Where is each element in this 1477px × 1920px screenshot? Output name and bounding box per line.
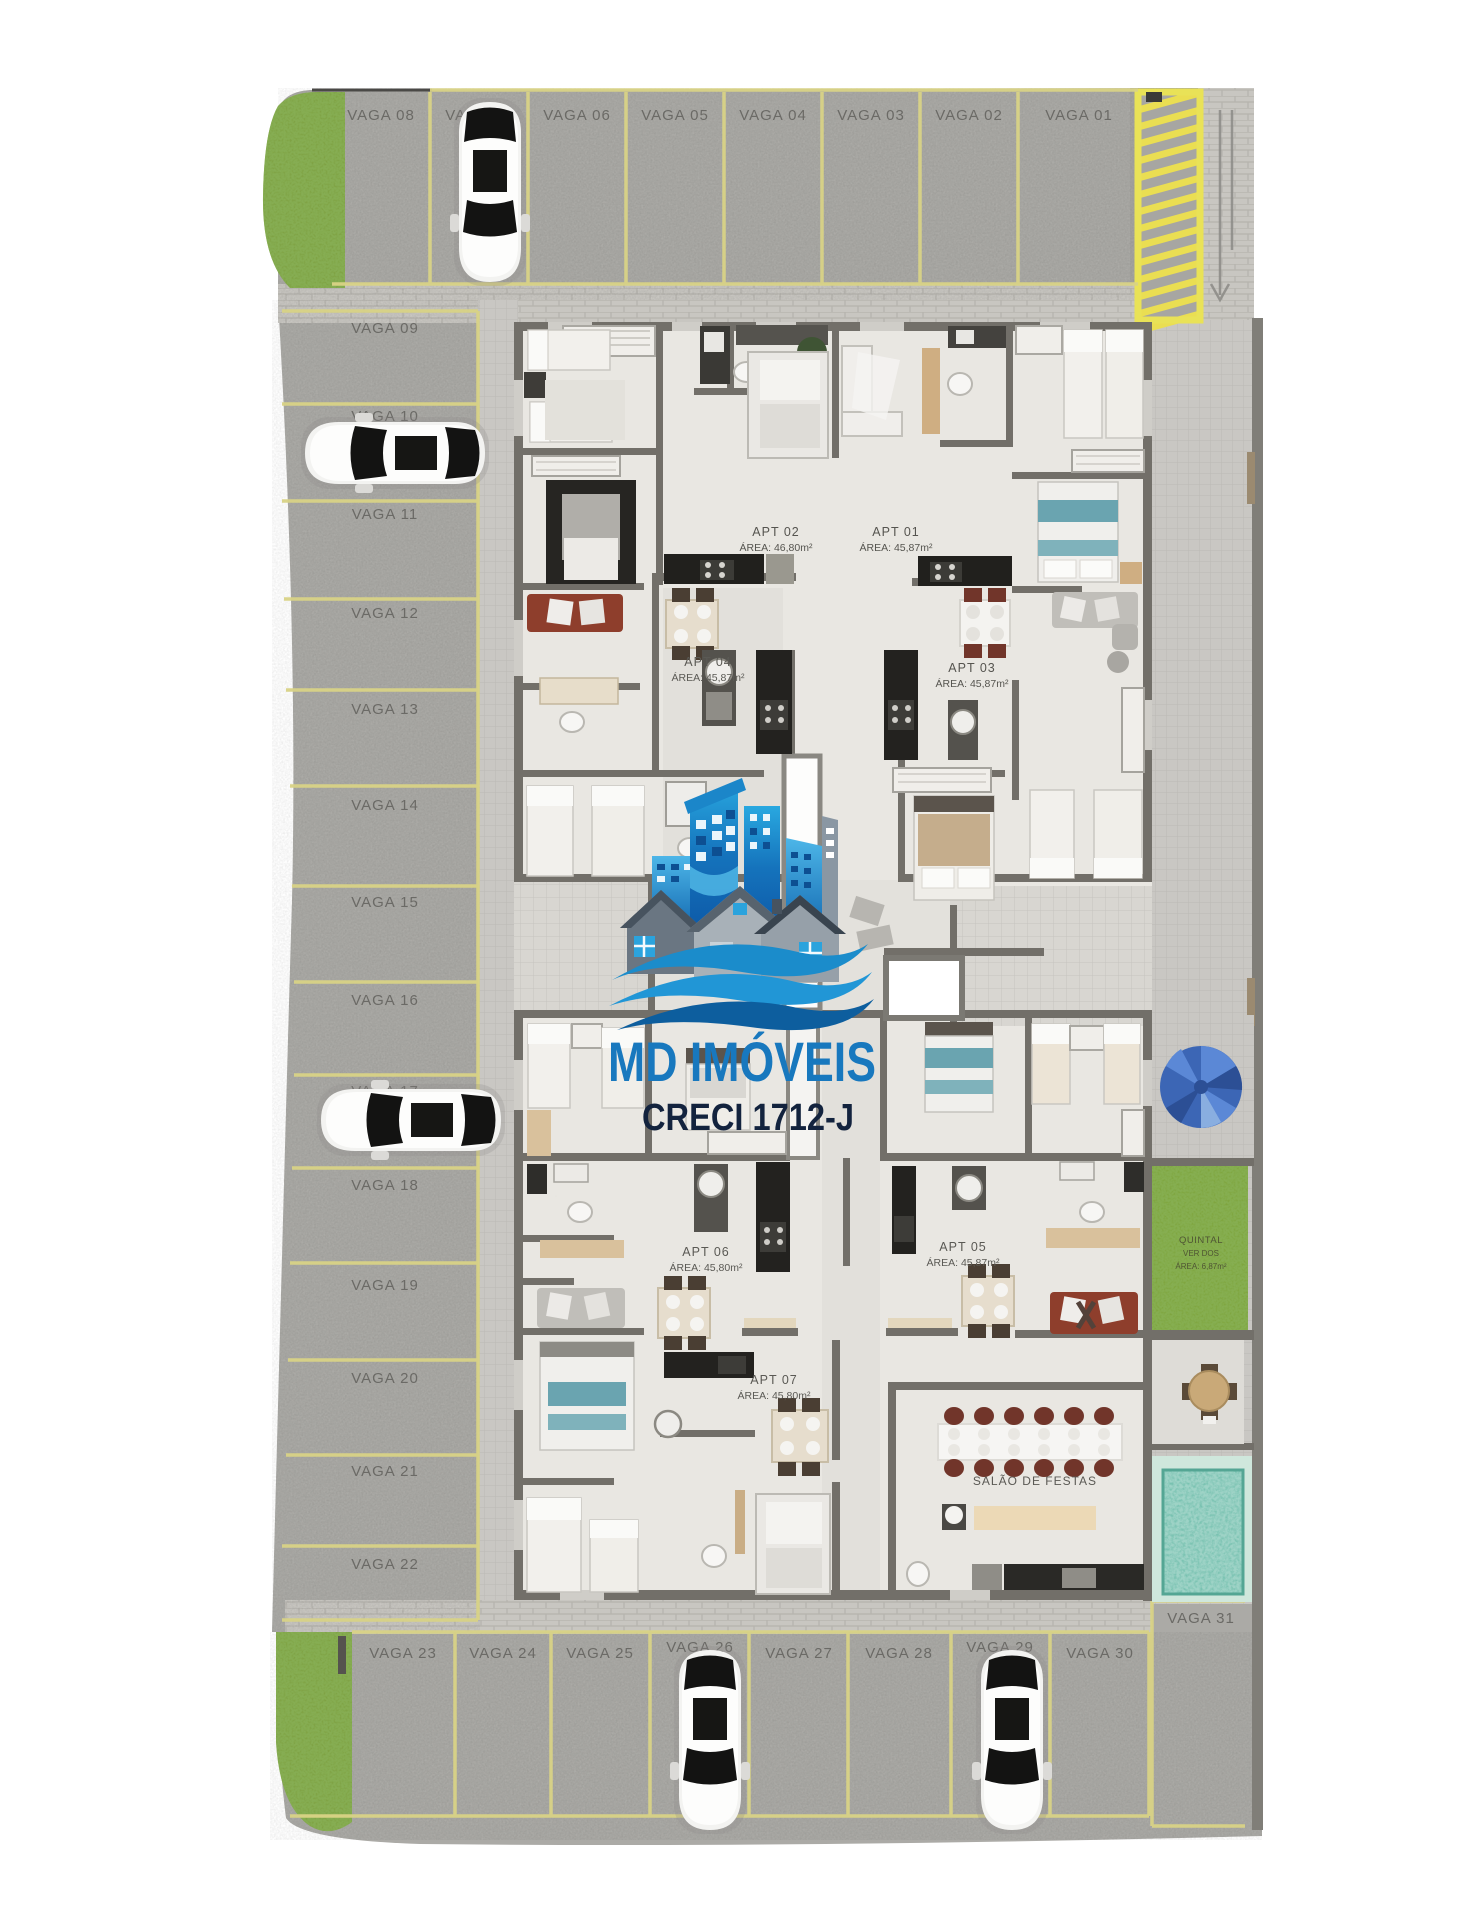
svg-text:ÁREA: 45,87m²: ÁREA: 45,87m² bbox=[860, 541, 933, 554]
svg-text:APT 02: APT 02 bbox=[752, 525, 799, 539]
svg-text:APT 07: APT 07 bbox=[750, 1373, 797, 1387]
svg-text:VER DOS: VER DOS bbox=[1183, 1249, 1219, 1258]
svg-text:VAGA 19: VAGA 19 bbox=[351, 1277, 419, 1294]
svg-text:SALÃO DE FESTAS: SALÃO DE FESTAS bbox=[973, 1474, 1097, 1488]
svg-text:VAGA 11: VAGA 11 bbox=[352, 506, 418, 523]
svg-text:VAGA 18: VAGA 18 bbox=[351, 1177, 419, 1194]
svg-text:VAGA 23: VAGA 23 bbox=[369, 1645, 437, 1662]
svg-text:MD IMÓVEIS: MD IMÓVEIS bbox=[608, 1030, 876, 1093]
svg-text:VAGA 20: VAGA 20 bbox=[351, 1370, 419, 1387]
svg-text:VAGA 27: VAGA 27 bbox=[765, 1645, 833, 1662]
svg-text:ÁREA: 45,87m²: ÁREA: 45,87m² bbox=[927, 1256, 1000, 1269]
svg-text:VAGA 30: VAGA 30 bbox=[1066, 1645, 1134, 1662]
svg-text:APT 04: APT 04 bbox=[684, 655, 731, 669]
svg-text:CRECI 1712-J: CRECI 1712-J bbox=[642, 1097, 854, 1139]
svg-text:VAGA 08: VAGA 08 bbox=[347, 107, 415, 124]
svg-text:APT 01: APT 01 bbox=[872, 525, 919, 539]
svg-text:VAGA 24: VAGA 24 bbox=[469, 1645, 537, 1662]
svg-text:VAGA 03: VAGA 03 bbox=[837, 107, 905, 124]
svg-text:APT 06: APT 06 bbox=[682, 1245, 729, 1259]
svg-text:VAGA 15: VAGA 15 bbox=[351, 894, 419, 911]
svg-text:ÁREA: 45,80m²: ÁREA: 45,80m² bbox=[670, 1261, 743, 1274]
svg-text:VAGA 22: VAGA 22 bbox=[351, 1556, 419, 1573]
svg-text:VAGA 25: VAGA 25 bbox=[566, 1645, 634, 1662]
svg-text:VAGA 31: VAGA 31 bbox=[1167, 1610, 1235, 1627]
svg-text:VAGA 01: VAGA 01 bbox=[1045, 107, 1113, 124]
svg-text:ÁREA: 46,80m²: ÁREA: 46,80m² bbox=[740, 541, 813, 554]
svg-text:VAGA 12: VAGA 12 bbox=[351, 605, 419, 622]
svg-text:ÁREA: 45,87m²: ÁREA: 45,87m² bbox=[672, 671, 745, 684]
svg-text:VAGA 06: VAGA 06 bbox=[543, 107, 611, 124]
svg-text:ÁREA: 45,87m²: ÁREA: 45,87m² bbox=[936, 677, 1009, 690]
svg-text:VAGA 14: VAGA 14 bbox=[351, 797, 419, 814]
svg-text:ÁREA: 45,80m²: ÁREA: 45,80m² bbox=[738, 1389, 811, 1402]
svg-text:VAGA 21: VAGA 21 bbox=[351, 1463, 419, 1480]
svg-text:VAGA 05: VAGA 05 bbox=[641, 107, 709, 124]
svg-text:VAGA 04: VAGA 04 bbox=[739, 107, 807, 124]
svg-text:APT 05: APT 05 bbox=[939, 1240, 986, 1254]
svg-text:VAGA 02: VAGA 02 bbox=[935, 107, 1003, 124]
svg-text:APT 03: APT 03 bbox=[948, 661, 995, 675]
svg-text:VAGA 16: VAGA 16 bbox=[351, 992, 419, 1009]
svg-text:QUINTAL: QUINTAL bbox=[1179, 1235, 1223, 1246]
svg-text:ÁREA: 6,87m²: ÁREA: 6,87m² bbox=[1175, 1262, 1226, 1271]
svg-text:VAGA 13: VAGA 13 bbox=[351, 701, 419, 718]
svg-text:VAGA 28: VAGA 28 bbox=[865, 1645, 933, 1662]
svg-text:VAGA 09: VAGA 09 bbox=[351, 320, 419, 337]
